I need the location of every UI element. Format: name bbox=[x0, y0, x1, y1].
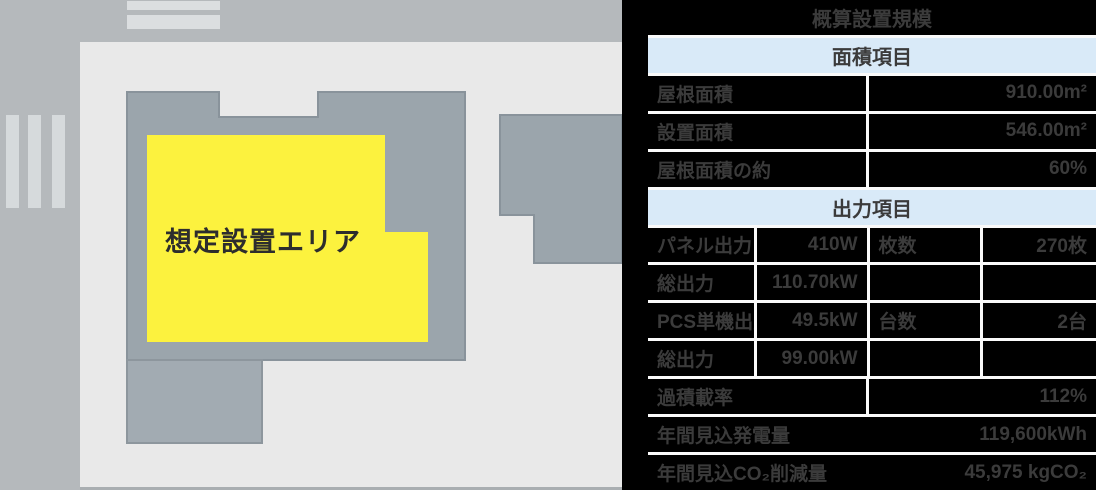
neighbor-building-footprint bbox=[500, 115, 622, 263]
total-output-ac-label: 総出力 bbox=[648, 341, 754, 376]
panel-output-value: 410W bbox=[757, 228, 867, 263]
section-header-output: 出力項目 bbox=[648, 190, 1096, 228]
table-row-annual-co2: 年間見込CO₂削減量 45,975 kgCO₂ bbox=[648, 455, 1096, 490]
install-area-label: 設置面積 bbox=[648, 114, 866, 149]
empty-cell bbox=[870, 265, 981, 300]
roof-area-value: 910.00m² bbox=[869, 76, 1096, 111]
table-title-row: 概算設置規模 bbox=[648, 0, 1096, 38]
table-row-install-area: 設置面積 546.00m² bbox=[648, 114, 1096, 152]
panel-output-label: パネル出力 bbox=[648, 228, 754, 263]
annual-co2-value: 45,975 kgCO₂ bbox=[964, 462, 1087, 484]
annual-co2-label: 年間見込CO₂削減量 bbox=[657, 459, 827, 486]
total-output-ac-value: 99.00kW bbox=[757, 341, 867, 376]
overload-ratio-value: 112% bbox=[869, 379, 1096, 414]
roof-ratio-value: 60% bbox=[869, 152, 1096, 187]
pcs-count-value: 2台 bbox=[983, 303, 1096, 338]
total-output-dc-value: 110.70kW bbox=[757, 265, 867, 300]
table-row-roof-area: 屋根面積 910.00m² bbox=[648, 76, 1096, 114]
table-row-total-output-dc: 総出力 110.70kW bbox=[648, 265, 1096, 303]
empty-cell bbox=[870, 341, 981, 376]
empty-cell bbox=[983, 341, 1096, 376]
annual-energy-value: 119,600kWh bbox=[979, 424, 1087, 446]
table-title: 概算設置規模 bbox=[648, 0, 1096, 35]
table-row-pcs-output: PCS単機出力 49.5kW 台数 2台 bbox=[648, 303, 1096, 341]
panel-count-label: 枚数 bbox=[870, 228, 981, 263]
section-header-area: 面積項目 bbox=[648, 38, 1096, 76]
install-area-value: 546.00m² bbox=[869, 114, 1096, 149]
table-row-panel-output: パネル出力 410W 枚数 270枚 bbox=[648, 228, 1096, 266]
panel-count-value: 270枚 bbox=[983, 228, 1096, 263]
pcs-output-label: PCS単機出力 bbox=[648, 303, 754, 338]
roof-ratio-label: 屋根面積の約 bbox=[648, 152, 866, 187]
annex-building-footprint bbox=[127, 360, 262, 443]
site-map: 想定設置エリア bbox=[0, 0, 622, 490]
table-row-overload-ratio: 過積載率 112% bbox=[648, 379, 1096, 417]
pcs-output-value: 49.5kW bbox=[757, 303, 867, 338]
table-row-annual-energy: 年間見込発電量 119,600kWh bbox=[648, 417, 1096, 455]
roof-area-label: 屋根面積 bbox=[648, 76, 866, 111]
table-row-roof-ratio: 屋根面積の約 60% bbox=[648, 152, 1096, 190]
table-row-total-output-ac: 総出力 99.00kW bbox=[648, 341, 1096, 379]
overload-ratio-label: 過積載率 bbox=[648, 379, 866, 414]
empty-cell bbox=[983, 265, 1096, 300]
section-header-output-label: 出力項目 bbox=[648, 190, 1096, 225]
section-header-area-label: 面積項目 bbox=[648, 38, 1096, 73]
installation-area-label: 想定設置エリア bbox=[165, 220, 405, 259]
estimate-table: 概算設置規模 面積項目 屋根面積 910.00m² 設置面積 546.00m² … bbox=[622, 0, 1096, 490]
total-output-dc-label: 総出力 bbox=[648, 265, 754, 300]
annual-energy-label: 年間見込発電量 bbox=[657, 421, 790, 448]
pcs-count-label: 台数 bbox=[870, 303, 981, 338]
